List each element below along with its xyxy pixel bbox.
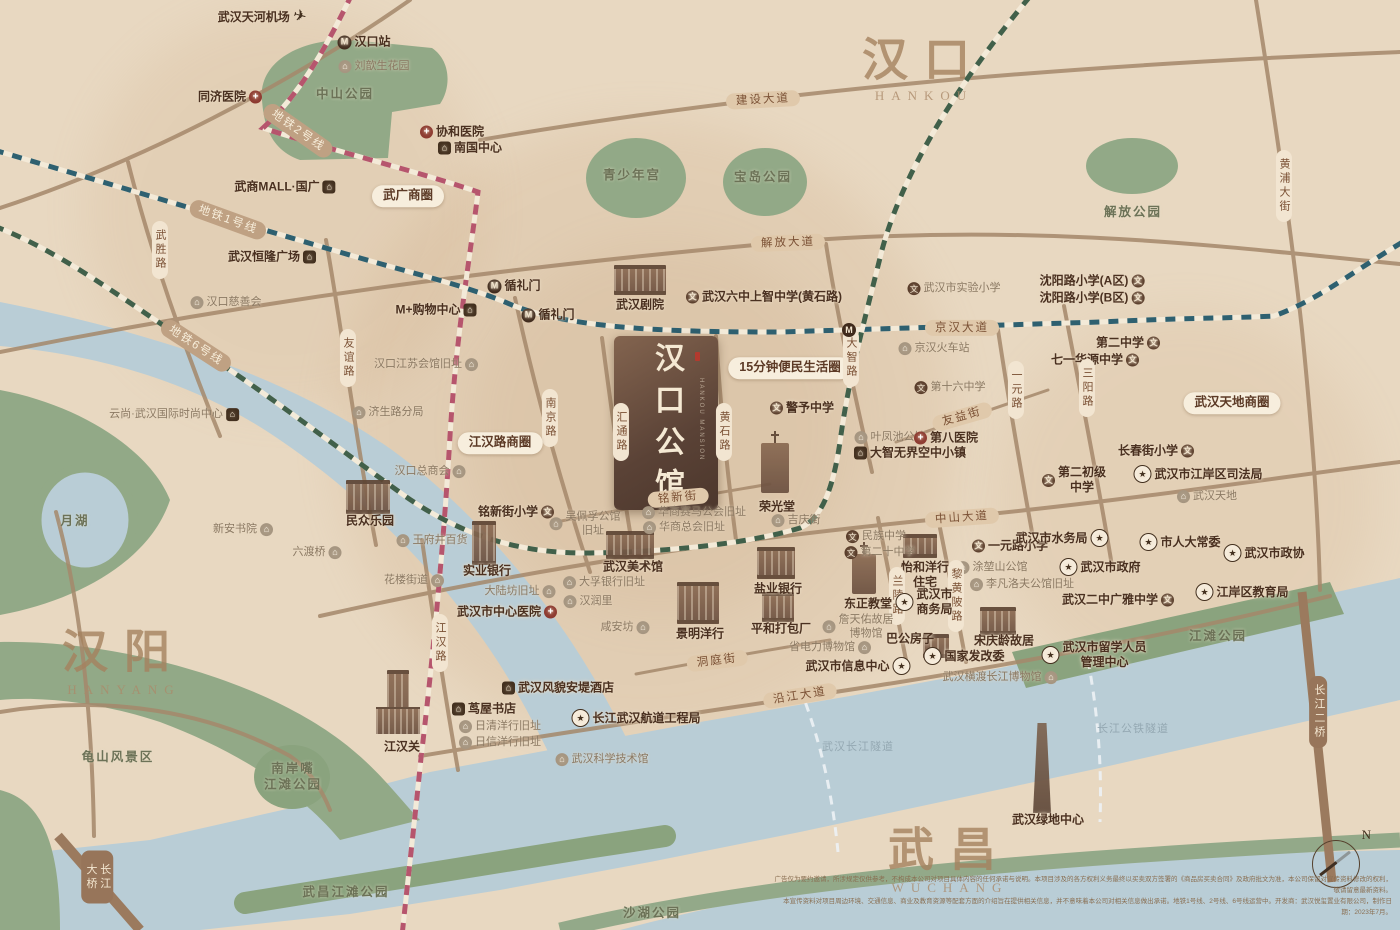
label-xiehe-hospital-text: 协和医院 xyxy=(436,125,484,140)
label-yiyuan-road-text: 一元路 xyxy=(1010,369,1022,411)
school-icon: 文 xyxy=(1042,474,1055,487)
label-baodao-park: 宝岛公园 xyxy=(734,170,792,186)
label-no2-junior-text: 第二初级 中学 xyxy=(1058,465,1106,495)
herit-icon: ⌂ xyxy=(459,721,472,734)
label-no20-school: 文第二十中学 xyxy=(845,546,916,560)
map-canvas: 汉口公馆 HANKOU MANSION N 广告仅为要约邀请，所涉规定仅供参考，… xyxy=(0,0,1400,930)
label-qingshaonian-palace-text: 青少年宫 xyxy=(603,168,661,184)
label-zhengxie-text: 武汉市政协 xyxy=(1244,546,1304,561)
star-icon: ★ xyxy=(1195,583,1213,601)
label-jiefang-avenue-text: 解放大道 xyxy=(761,235,815,251)
label-huangpu-avenue: 黄浦大街 xyxy=(1276,150,1292,222)
label-baodao-park-text: 宝岛公园 xyxy=(734,170,792,186)
herit-icon: ⌂ xyxy=(899,343,912,356)
label-gongtie-tunnel-text: 长江公铁隧道 xyxy=(1097,723,1169,737)
label-huashang-guild: ⌂华商总会旧址 xyxy=(643,521,725,535)
bldg-shiye-bank xyxy=(472,521,496,565)
label-changchunjie-primary-text: 长春街小学 xyxy=(1118,444,1178,459)
label-sanyang-road-text: 三阳路 xyxy=(1081,367,1093,409)
label-no2-middle-school: 第二中学文 xyxy=(1096,336,1160,351)
label-tongji-hospital: 同济医院+ xyxy=(198,90,262,105)
label-henglong-plaza-text: 武汉恒隆广场 xyxy=(228,250,300,265)
compass-north-label: N xyxy=(1362,827,1371,843)
label-jiefang-park-text: 解放公园 xyxy=(1104,205,1162,221)
school-icon: 文 xyxy=(1147,337,1160,350)
label-wusheng-road: 武胜路 xyxy=(152,221,168,279)
label-xiananfang-text: 咸安坊 xyxy=(601,621,634,635)
label-hangdao-bureau-text: 长江武汉航道工程局 xyxy=(592,711,700,726)
herit-icon: ⌂ xyxy=(339,61,352,74)
label-hanrunli: ⌂汉润里 xyxy=(564,595,613,609)
label-pinghe-factory-text: 平和打包厂 xyxy=(751,622,811,637)
star-icon: ★ xyxy=(923,647,941,665)
herit-icon: ⌂ xyxy=(353,407,366,420)
label-jianghanlu-cbd-text: 江汉路商圈 xyxy=(469,435,532,451)
label-tianhe-airport-text: 武汉天河机场 xyxy=(218,10,290,25)
label-xinan-academy-text: 新安书院 xyxy=(213,523,257,537)
label-minzu-school: 文民族中学 xyxy=(846,530,906,544)
star-icon: ★ xyxy=(893,657,911,675)
label-jiangtan-park: 江滩公园 xyxy=(1189,629,1247,645)
label-wuguang-cbd: 武广商圈 xyxy=(372,185,444,207)
label-wuchang-en-text: WUCHANG xyxy=(892,880,1009,896)
label-hankou-title: 汉口 xyxy=(862,31,986,89)
label-mingxin-street-text: 铭新街 xyxy=(657,489,699,507)
herit-icon: ⌂ xyxy=(465,359,478,372)
label-zhongshan-park: 中山公园 xyxy=(316,87,374,103)
project-name: 汉口公馆 xyxy=(644,336,688,510)
shop-icon: ⌂ xyxy=(303,251,316,264)
school-icon: 文 xyxy=(908,283,921,296)
herit-icon: ⌂ xyxy=(459,737,472,750)
hosp-icon: + xyxy=(420,126,433,139)
label-lifanluofu-house-text: 李凡洛夫公馆旧址 xyxy=(986,578,1074,592)
school-icon: 文 xyxy=(845,547,858,560)
label-yanye-bank: 盐业银行 xyxy=(754,582,802,597)
label-crossing-museum-text: 武汉横渡长江博物馆 xyxy=(943,671,1042,685)
label-nanguo-center-text: 南国中心 xyxy=(454,141,502,156)
label-huitong-road-text: 汇通路 xyxy=(615,411,627,453)
label-hankou-chamber: 汉口总商会⌂ xyxy=(395,465,466,479)
label-lifanluofu-house: ⌂李凡洛夫公馆旧址 xyxy=(970,578,1074,592)
label-zhongshan-park-text: 中山公园 xyxy=(316,87,374,103)
label-wuchang-jiangtan-text: 武昌江滩公园 xyxy=(302,885,389,901)
label-hankou-chamber-text: 汉口总商会 xyxy=(395,465,450,479)
herit-icon: ⌂ xyxy=(823,621,836,634)
label-no8-hospital: +第八医院 xyxy=(914,431,978,446)
label-jiangsu-guild-text: 汉口江苏会馆旧址 xyxy=(374,358,462,372)
bldg-minzhong-leyuan xyxy=(346,480,390,514)
label-sanyang-road: 三阳路 xyxy=(1079,359,1095,417)
label-jingming-yanghang-text: 景明洋行 xyxy=(676,627,724,642)
label-qingshaonian-palace: 青少年宫 xyxy=(603,168,661,184)
label-no8-hospital-text: 第八医院 xyxy=(930,431,978,446)
label-city-gov: ★武汉市政府 xyxy=(1059,558,1140,576)
bldg-rongguangtang xyxy=(761,443,789,493)
label-no16-school: 文第十六中学 xyxy=(915,381,986,395)
label-yangtze-tunnel: 武汉长江隧道 xyxy=(822,741,894,755)
label-mingxinjie-primary-text: 铭新街小学 xyxy=(478,505,538,520)
hosp-icon: + xyxy=(249,91,262,104)
herit-icon: ⌂ xyxy=(564,596,577,609)
label-dafu-bank: ⌂大孚银行旧址 xyxy=(563,576,645,590)
label-guishan-scenic: 龟山风景区 xyxy=(82,750,155,766)
label-bagongfangzi: 巴公房子 xyxy=(886,632,934,647)
label-wuchang-title-text: 武昌 xyxy=(888,821,1012,879)
star-icon: ★ xyxy=(571,709,589,727)
shop-icon: ⌂ xyxy=(452,703,465,716)
label-xiehe-hospital: +协和医院 xyxy=(420,125,484,140)
school-icon: 文 xyxy=(1126,354,1139,367)
label-fengmao-hotel-text: 武汉风貌安堤酒店 xyxy=(518,681,614,696)
project-marker-hankou-mansion: 汉口公馆 HANKOU MANSION xyxy=(614,336,718,510)
label-jiefang-avenue: 解放大道 xyxy=(751,234,826,253)
label-shahu-park-text: 沙湖公园 xyxy=(623,906,681,922)
label-wuhan-theatre: 武汉剧院 xyxy=(616,298,664,313)
label-wuguang-cbd-text: 武广商圈 xyxy=(383,188,433,204)
label-greenland-center-text: 武汉绿地中心 xyxy=(1012,813,1084,828)
label-huashang-guild-text: 华商总会旧址 xyxy=(659,521,725,535)
label-xunlimen-1-text: 循礼门 xyxy=(504,279,540,294)
label-renda: ★市人大常委 xyxy=(1139,533,1220,551)
label-fagaiwei: ★国家发改委 xyxy=(923,647,1004,665)
label-minzhong-leyuan-text: 民众乐园 xyxy=(346,514,394,529)
label-tukunshan-house: ⌂涂堃山公馆 xyxy=(957,561,1028,575)
label-wushang-mall-text: 武商MALL·国广 xyxy=(234,180,319,195)
shop-icon: ⌂ xyxy=(438,142,451,155)
herit-icon: ⌂ xyxy=(1045,672,1058,685)
label-xunlimen-1: M循礼门 xyxy=(487,279,540,294)
project-seal-mark xyxy=(695,352,700,361)
star-icon: ★ xyxy=(1223,544,1241,562)
label-jiqing-street: ⌂吉庆街 xyxy=(772,514,821,528)
label-yuehu-lake-text: 月湖 xyxy=(60,514,89,530)
herit-icon: ⌂ xyxy=(431,575,444,588)
label-wuhantiandi: ⌂武汉天地 xyxy=(1177,490,1237,504)
label-yangtze-tunnel-text: 武汉长江隧道 xyxy=(822,741,894,755)
label-shiye-bank: 实业银行 xyxy=(463,564,511,579)
shop-icon: ⌂ xyxy=(854,447,867,460)
label-city-gov-text: 武汉市政府 xyxy=(1080,560,1140,575)
school-icon: 文 xyxy=(770,402,783,415)
school-icon: 文 xyxy=(972,540,985,553)
label-info-center: 武汉市信息中心★ xyxy=(805,657,910,675)
label-wuchang-jiangtan: 武昌江滩公园 xyxy=(302,885,389,901)
label-water-bureau-text: 武汉市水务局 xyxy=(1015,531,1087,546)
label-tongji-hospital-text: 同济医院 xyxy=(198,90,246,105)
label-jiangtan-park-text: 江滩公园 xyxy=(1189,629,1247,645)
label-liuxue-center: ★武汉市留学人员 管理中心 xyxy=(1041,640,1146,670)
label-jianghan-road-text: 江汉路 xyxy=(434,622,446,664)
label-racing-club: ⌂华商赛马公会旧址 xyxy=(642,506,746,520)
label-center-hospital: 武汉市中心医院+ xyxy=(457,605,557,620)
label-edu-bureau: ★江岸区教育局 xyxy=(1195,583,1288,601)
metro-icon: M xyxy=(521,308,535,322)
label-yiyuan-road: 一元路 xyxy=(1008,361,1024,419)
shop-icon: ⌂ xyxy=(502,682,515,695)
label-jinghan-avenue-text: 京汉大道 xyxy=(935,321,989,335)
label-hanrunli-text: 汉润里 xyxy=(580,595,613,609)
label-changjiang-bridge1: 长江大桥 xyxy=(81,851,113,904)
label-hankou-title-text: 汉口 xyxy=(862,31,986,89)
label-hanyang-en-text: HANYANG xyxy=(67,682,180,698)
bldg-jingming-yanghang xyxy=(677,582,719,624)
label-nanjing-road-text: 南京路 xyxy=(544,397,556,439)
label-art-museum: 武汉美术馆 xyxy=(603,560,663,575)
label-racing-club-text: 华商赛马公会旧址 xyxy=(658,506,746,520)
label-tukunshan-house-text: 涂堃山公馆 xyxy=(973,561,1028,575)
label-sifaju-text: 武汉市江岸区司法局 xyxy=(1154,467,1262,482)
label-no16-school-text: 第十六中学 xyxy=(931,381,986,395)
school-icon: 文 xyxy=(1181,445,1194,458)
disclaimer-line-2: 本宣传资料对项目周边环境、交通信息、商业及教育资源等配套方面的介绍旨在提供相关信… xyxy=(772,896,1392,918)
label-wupeifu-house-text: 吴佩孚公馆 旧址 xyxy=(566,510,621,538)
label-guishan-scenic-text: 龟山风景区 xyxy=(82,750,155,766)
label-dalufang-text: 大陆坊旧址 xyxy=(485,585,540,599)
label-changjiang-bridge2-text: 长江二桥 xyxy=(1311,684,1325,740)
label-liuzhong-school: 文武汉六中上智中学(黄石路) xyxy=(686,290,842,305)
label-wuhantiandi-text: 武汉天地 xyxy=(1193,490,1237,504)
label-wangfujing-text: 王府井百货 xyxy=(413,534,468,548)
label-power-museum: 省电力博物馆⌂ xyxy=(789,641,871,655)
hosp-icon: + xyxy=(914,432,927,445)
herit-icon: ⌂ xyxy=(637,622,650,635)
label-nanjing-road: 南京路 xyxy=(542,389,558,447)
school-icon: 文 xyxy=(846,531,859,544)
label-xinan-academy: 新安书院⌂ xyxy=(213,523,273,537)
disclaimer: 广告仅为要约邀请，所涉规定仅供参考，不构成本公司对项目具体内容的任何承诺与说明。… xyxy=(772,874,1392,918)
label-science-museum: ⌂武汉科学技术馆 xyxy=(556,753,649,767)
compass-needle-icon xyxy=(1319,851,1351,877)
label-yanye-bank-text: 盐业银行 xyxy=(754,582,802,597)
label-hankou-en-text: HANKOU xyxy=(875,88,973,104)
herit-icon: ⌂ xyxy=(855,432,868,445)
label-dongzheng-church: 东正教堂 xyxy=(844,597,892,612)
label-wuchang-title: 武昌 xyxy=(888,821,1012,879)
herit-icon: ⌂ xyxy=(858,642,871,655)
label-shiyan-primary: 文武汉市实验小学 xyxy=(908,282,1001,296)
label-15min-circle: 15分钟便民生活圈 xyxy=(728,357,851,379)
label-shenyanglu-b-text: 沈阳路小学(B区) xyxy=(1040,291,1129,306)
label-jisheng-branch-text: 济生路分局 xyxy=(369,406,424,420)
label-dazhiwujie-town: ⌂大智无界空中小镇 xyxy=(854,446,966,461)
label-dazhi-road: 大智路 xyxy=(843,329,859,387)
label-no2-junior: 文第二初级 中学 xyxy=(1042,465,1106,495)
shop-icon: ⌂ xyxy=(464,304,477,317)
label-jingming-yanghang: 景明洋行 xyxy=(676,627,724,642)
label-henglong-plaza: 武汉恒隆广场⌂ xyxy=(228,250,316,265)
label-jisheng-branch: ⌂济生路分局 xyxy=(353,406,424,420)
label-wupeifu-house: ⌂吴佩孚公馆 旧址 xyxy=(550,510,621,538)
label-hanyang-title-text: 汉阳 xyxy=(62,623,186,681)
label-greenland-center: 武汉绿地中心 xyxy=(1012,813,1084,828)
label-wuhan-theatre-text: 武汉剧院 xyxy=(616,298,664,313)
label-yunshang-center-text: 云尚·武汉国际时尚中心 xyxy=(109,408,223,422)
label-huangpu-avenue-text: 黄浦大街 xyxy=(1278,158,1290,214)
herit-icon: ⌂ xyxy=(329,547,342,560)
label-changjiang-bridge2: 长江二桥 xyxy=(1309,676,1327,748)
label-jianshe-avenue-text: 建设大道 xyxy=(736,91,791,108)
label-mplus-mall-text: M+购物中心 xyxy=(395,303,460,318)
label-dazhiwujie-town-text: 大智无界空中小镇 xyxy=(870,446,966,461)
label-jingyu-school-text: 警予中学 xyxy=(786,401,834,416)
label-liuxinsheng-garden-text: 刘歆生花园 xyxy=(355,60,410,74)
label-xiananfang: 咸安坊⌂ xyxy=(601,621,650,635)
label-mingxinjie-primary: 铭新街小学文 xyxy=(478,505,554,520)
herit-icon: ⌂ xyxy=(453,466,466,479)
project-name-en: HANKOU MANSION xyxy=(698,378,704,461)
label-changchunjie-primary: 长春街小学文 xyxy=(1118,444,1194,459)
label-fagaiwei-text: 国家发改委 xyxy=(944,649,1004,664)
bldg-dongzheng-church xyxy=(852,554,876,594)
label-sifaju: ★武汉市江岸区司法局 xyxy=(1133,465,1262,483)
label-hankou-station: M汉口站 xyxy=(337,35,390,50)
label-xunlimen-2-text: 循礼门 xyxy=(538,308,574,323)
label-nananzui-park: 南岸嘴 江滩公园 xyxy=(264,761,322,792)
label-shahu-park: 沙湖公园 xyxy=(623,906,681,922)
disclaimer-line-1: 广告仅为要约邀请，所涉规定仅供参考，不构成本公司对项目具体内容的任何承诺与说明。… xyxy=(772,874,1392,896)
label-shenyanglu-b: 沈阳路小学(B区)文 xyxy=(1040,291,1145,306)
shop-icon: ⌂ xyxy=(323,181,336,194)
label-center-hospital-text: 武汉市中心医院 xyxy=(457,605,541,620)
label-hankou-charity-text: 汉口慈善会 xyxy=(207,296,262,310)
label-shiye-bank-text: 实业银行 xyxy=(463,564,511,579)
metro-icon: M xyxy=(487,279,501,293)
herit-icon: ⌂ xyxy=(397,535,410,548)
herit-icon: ⌂ xyxy=(563,577,576,590)
metro-icon: M xyxy=(842,323,856,337)
label-hualou-street: 花楼街道⌂ xyxy=(384,574,444,588)
label-water-bureau: 武汉市水务局★ xyxy=(1015,529,1108,547)
park-jiefang xyxy=(1086,138,1178,194)
label-yihe-house-text: 怡和洋行 住宅 xyxy=(901,560,949,590)
label-dazhi-station: M xyxy=(842,323,856,337)
label-jinghan-avenue: 京汉大道 xyxy=(925,320,999,336)
label-jiefang-park: 解放公园 xyxy=(1104,205,1162,221)
label-jinghan-railstation: ⌂京汉火车站 xyxy=(899,342,970,356)
herit-icon: ⌂ xyxy=(543,586,556,599)
school-icon: 文 xyxy=(1131,275,1144,288)
label-bagongfangzi-text: 巴公房子 xyxy=(886,632,934,647)
bldg-songqingling xyxy=(980,607,1016,635)
label-youyi-road: 友谊路 xyxy=(340,329,356,387)
label-wuhantiandi-cbd: 武汉天地商圈 xyxy=(1183,392,1280,414)
label-no20-school-text: 第二十中学 xyxy=(861,546,916,560)
label-wuhantiandi-cbd-text: 武汉天地商圈 xyxy=(1194,395,1269,411)
label-minzu-school-text: 民族中学 xyxy=(862,530,906,544)
herit-icon: ⌂ xyxy=(970,579,983,592)
label-jiangsu-guild: 汉口江苏会馆旧址⌂ xyxy=(374,358,478,372)
label-shenyanglu-a: 沈阳路小学(A区)文 xyxy=(1040,274,1145,289)
school-icon: 文 xyxy=(1161,594,1174,607)
hosp-icon: + xyxy=(544,606,557,619)
label-liuzhong-school-text: 武汉六中上智中学(黄石路) xyxy=(702,290,842,305)
star-icon: ★ xyxy=(1041,646,1059,664)
label-qiyihuayuan-school: 七一华源中学文 xyxy=(1051,353,1139,368)
label-wangfujing: ⌂王府井百货 xyxy=(397,534,468,548)
label-fengmao-hotel: ⌂武汉风貌安堤酒店 xyxy=(502,681,614,696)
bldg-yanye-bank xyxy=(757,547,795,579)
label-power-museum-text: 省电力博物馆 xyxy=(789,641,855,655)
label-zhantianyou-museum: ⌂詹天佑故居 博物馆 xyxy=(823,613,894,641)
label-wuchang-en: WUCHANG xyxy=(892,880,1009,896)
label-art-museum-text: 武汉美术馆 xyxy=(603,560,663,575)
label-yihe-house: 怡和洋行 住宅 xyxy=(901,560,949,590)
label-rixin-yanghang: ⌂日信洋行旧址 xyxy=(459,736,541,750)
label-liuxue-center-text: 武汉市留学人员 管理中心 xyxy=(1062,640,1146,670)
label-dazhi-road-text: 大智路 xyxy=(845,337,857,379)
label-xunlimen-2: M循礼门 xyxy=(521,308,574,323)
label-shangwuju: ★武汉市 商务局 xyxy=(895,587,952,617)
herit-icon: ⌂ xyxy=(643,522,656,535)
herit-icon: ⌂ xyxy=(1177,491,1190,504)
label-rongguangtang-text: 荣光堂 xyxy=(759,500,795,515)
herit-icon: ⌂ xyxy=(772,515,785,528)
label-mplus-mall: M+购物中心⌂ xyxy=(395,303,476,318)
label-jingyu-school: 文警予中学 xyxy=(770,401,834,416)
label-liuduqiao-text: 六渡桥 xyxy=(293,546,326,560)
label-liuduqiao: 六渡桥⌂ xyxy=(293,546,342,560)
star-icon: ★ xyxy=(1091,529,1109,547)
label-dafu-bank-text: 大孚银行旧址 xyxy=(579,576,645,590)
label-huitong-road: 汇通路 xyxy=(613,403,629,461)
label-jianghanlu-cbd: 江汉路商圈 xyxy=(458,432,543,454)
herit-icon: ⌂ xyxy=(642,507,655,520)
label-huangshi-road-text: 黄石路 xyxy=(718,411,730,453)
star-icon: ★ xyxy=(1059,558,1077,576)
label-riqing-yanghang: ⌂日清洋行旧址 xyxy=(459,720,541,734)
star-icon: ★ xyxy=(895,593,913,611)
label-niaowu-bookstore: ⌂茑屋书店 xyxy=(452,702,516,717)
label-hanyang-en: HANYANG xyxy=(67,682,180,698)
label-yunshang-center: 云尚·武汉国际时尚中心⌂ xyxy=(109,408,239,422)
label-crossing-museum: 武汉横渡长江博物馆⌂ xyxy=(943,671,1058,685)
label-rixin-yanghang-text: 日信洋行旧址 xyxy=(475,736,541,750)
school-icon: 文 xyxy=(915,382,928,395)
label-guangya-school: 武汉二中广雅中学文 xyxy=(1062,593,1174,608)
label-jianghanguan: 江汉关 xyxy=(384,740,420,755)
label-liuxinsheng-garden: ⌂刘歆生花园 xyxy=(339,60,410,74)
herit-icon: ⌂ xyxy=(191,297,204,310)
label-dongzheng-church-text: 东正教堂 xyxy=(844,597,892,612)
label-changjiang-bridge1-text: 长江大桥 xyxy=(83,859,111,896)
label-minzhong-leyuan: 民众乐园 xyxy=(346,514,394,529)
school-icon: 文 xyxy=(1131,292,1144,305)
star-icon: ★ xyxy=(1133,465,1151,483)
label-guangya-school-text: 武汉二中广雅中学 xyxy=(1062,593,1158,608)
bldg-jianghanguan xyxy=(387,670,409,734)
label-jinghan-railstation-text: 京汉火车站 xyxy=(915,342,970,356)
label-nanguo-center: ⌂南国中心 xyxy=(438,141,502,156)
label-jiqing-street-text: 吉庆街 xyxy=(788,514,821,528)
label-no2-middle-school-text: 第二中学 xyxy=(1096,336,1144,351)
school-icon: 文 xyxy=(686,291,699,304)
label-info-center-text: 武汉市信息中心 xyxy=(805,659,889,674)
label-niaowu-bookstore-text: 茑屋书店 xyxy=(468,702,516,717)
label-youyi-road-text: 友谊路 xyxy=(342,337,354,379)
label-hankou-charity: ⌂汉口慈善会 xyxy=(191,296,262,310)
herit-icon: ⌂ xyxy=(260,524,273,537)
label-shiyan-primary-text: 武汉市实验小学 xyxy=(924,282,1001,296)
metro-icon: M xyxy=(337,35,351,49)
label-shangwuju-text: 武汉市 商务局 xyxy=(916,587,952,617)
label-jianghan-road: 江汉路 xyxy=(432,614,448,672)
label-renda-text: 市人大常委 xyxy=(1160,535,1220,550)
label-pinghe-factory: 平和打包厂 xyxy=(751,622,811,637)
label-zhengxie: ★武汉市政协 xyxy=(1223,544,1304,562)
label-yuehu-lake: 月湖 xyxy=(60,514,89,530)
label-15min-circle-text: 15分钟便民生活圈 xyxy=(739,360,840,376)
